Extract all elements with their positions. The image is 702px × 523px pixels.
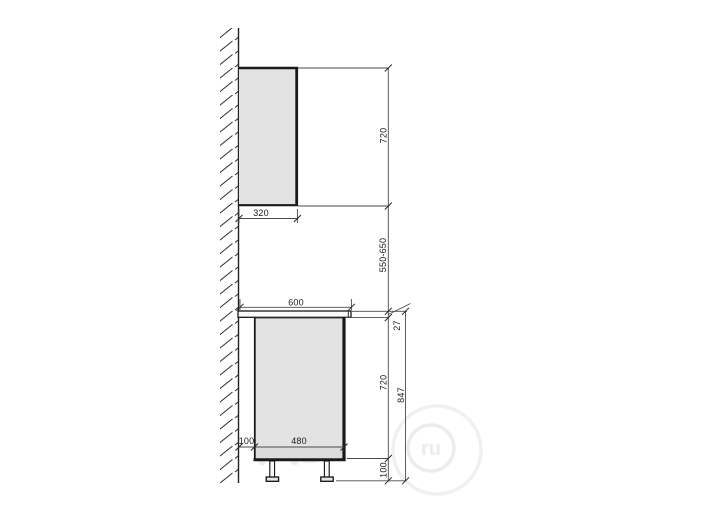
wall: [220, 28, 239, 483]
leg-left: [266, 461, 278, 481]
wall-hatching: [220, 28, 238, 483]
wall-cabinet: [239, 67, 298, 206]
label-wall-cabinet-height: 720: [378, 128, 388, 144]
label-wall-cabinet-depth: 320: [253, 208, 269, 218]
leg-left-stem: [270, 461, 275, 477]
leg-left-foot: [266, 477, 278, 481]
label-base-cabinet-depth: 480: [291, 436, 307, 446]
countertop: [238, 311, 351, 317]
label-leg-height: 100: [378, 462, 388, 478]
watermark-ru-icon: ru: [421, 438, 441, 460]
label-countertop-thickness: 27: [392, 320, 402, 330]
leg-right: [321, 461, 333, 481]
wall-cabinet-body: [239, 68, 297, 206]
label-total-height: 847: [396, 387, 406, 403]
label-hang-gap: 550-650: [378, 238, 388, 272]
leg-right-foot: [321, 477, 333, 481]
label-wall-clearance: 100: [239, 436, 255, 446]
cabinet-elevation-drawing: ru: [0, 0, 702, 523]
base-cabinet: [238, 311, 351, 481]
drawing-canvas: ru: [0, 0, 702, 523]
label-base-cabinet-height: 720: [378, 375, 388, 391]
leg-right-stem: [324, 461, 329, 477]
label-countertop-depth: 600: [288, 297, 304, 307]
base-cabinet-plinth-strip: [255, 447, 343, 458]
